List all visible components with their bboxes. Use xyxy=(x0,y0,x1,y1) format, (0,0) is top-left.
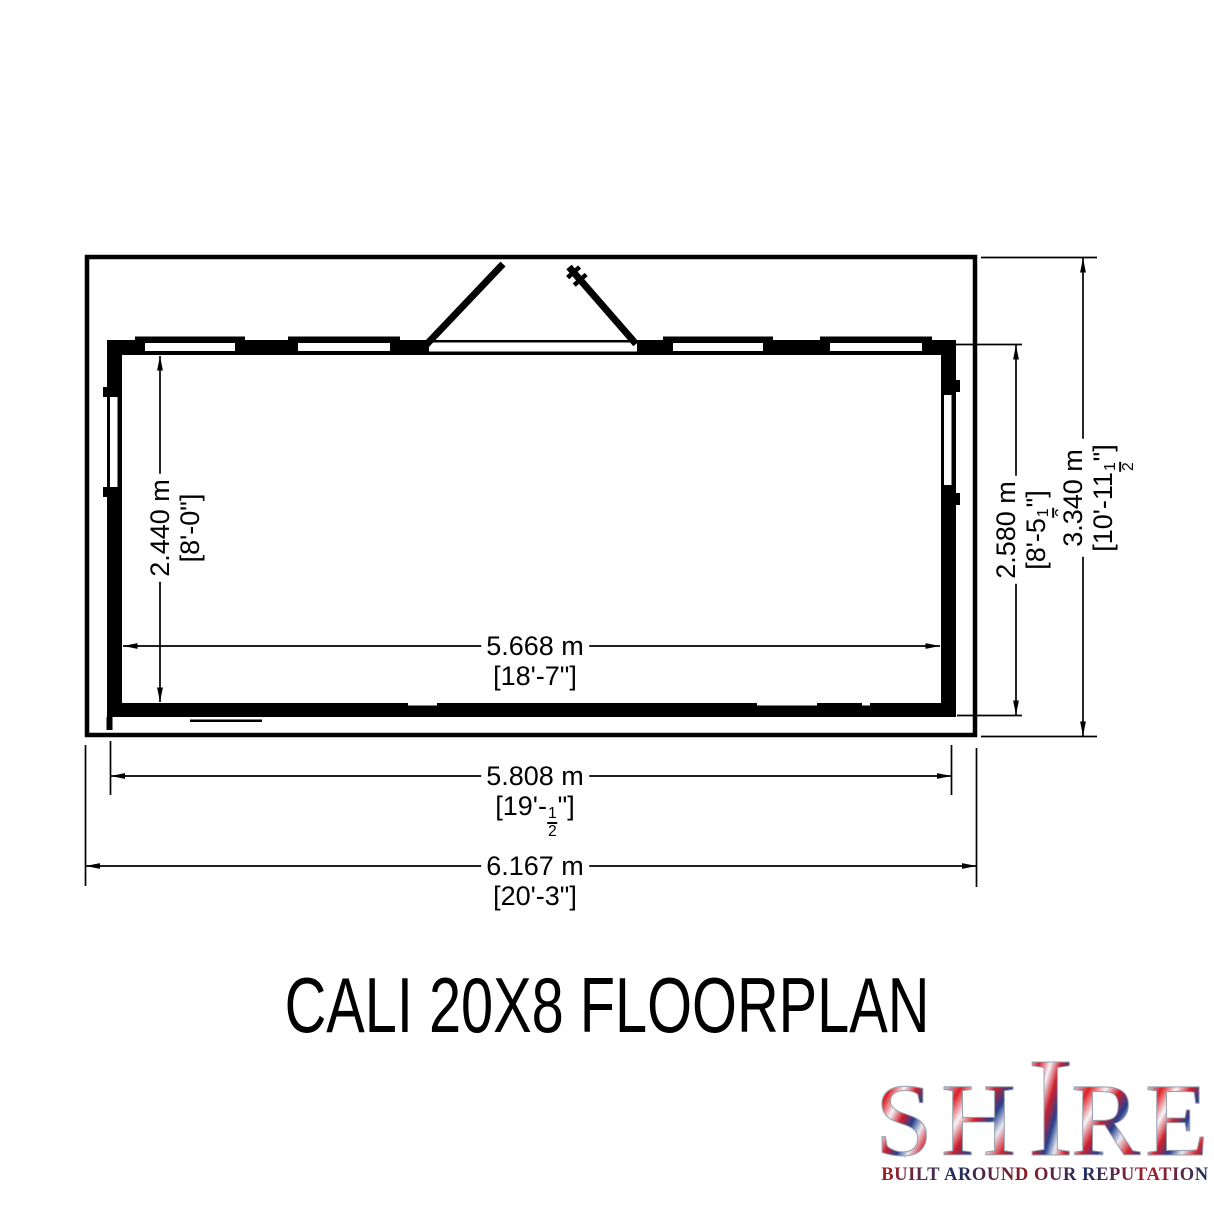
dim-metric: 5.668 m xyxy=(486,631,584,661)
right-window-nub xyxy=(956,380,961,392)
dim-metric: 5.808 m xyxy=(486,761,584,791)
window-frame xyxy=(830,351,922,355)
dim-metric: 2.440 m xyxy=(145,479,175,577)
top-wall-segment xyxy=(637,340,673,355)
window-sill xyxy=(288,337,400,341)
threshold-line xyxy=(190,720,262,723)
window-frame xyxy=(298,340,390,343)
left-window-nub xyxy=(103,387,108,397)
top-wall-segment xyxy=(235,340,298,355)
logo-letter-s: S xyxy=(875,1063,933,1178)
dim-label-inner-depth: 2.440 m [8'-0"] xyxy=(145,474,205,582)
dim-imperial: [20'-3"] xyxy=(486,881,584,911)
window-frame xyxy=(145,340,235,343)
dim-label-frame-width: 5.808 m [19'-12"] xyxy=(481,761,589,841)
logo-letter-h: H xyxy=(941,1063,1016,1178)
window-frame xyxy=(673,340,763,343)
dim-label-overall-depth: 3.340 m [10'-1112"] xyxy=(1058,439,1138,557)
page-title: CALI 20X8 FLOORPLAN xyxy=(158,966,1056,1044)
left-window-nub xyxy=(103,487,108,497)
right-window-nub xyxy=(956,493,961,505)
window-frame xyxy=(298,351,390,355)
top-wall-segment xyxy=(763,340,830,355)
dim-imperial: [8'-0"] xyxy=(175,479,205,577)
window-frame xyxy=(673,351,763,355)
left-wall xyxy=(107,340,122,717)
door-sill xyxy=(429,352,637,356)
bottom-wall xyxy=(107,703,956,717)
door-leaf-left xyxy=(426,264,503,345)
window-frame xyxy=(145,351,235,355)
dim-label-overall-width: 6.167 m [20'-3"] xyxy=(481,851,589,911)
top-wall-segment xyxy=(390,340,429,355)
door-sill xyxy=(429,340,637,343)
logo-letter-e: E xyxy=(1145,1063,1209,1178)
window-sill xyxy=(135,337,245,341)
window-frame xyxy=(830,340,922,343)
dim-label-inner-width: 5.668 m [18'-7"] xyxy=(481,631,589,691)
panel-joint xyxy=(408,703,437,706)
double-door xyxy=(426,264,637,355)
dim-metric: 6.167 m xyxy=(486,851,584,881)
panel-joint xyxy=(757,703,817,706)
floorplan-page: 5.668 m [18'-7"] 5.808 m [19'-12"] 6.167… xyxy=(0,0,1214,1214)
left-window-glazing xyxy=(110,397,118,487)
right-window-glazing xyxy=(944,395,952,485)
logo-letter-r: R xyxy=(1071,1063,1141,1178)
dim-metric: 3.340 m xyxy=(1058,444,1088,552)
panel-joint xyxy=(862,703,870,706)
shire-logo: S H I R E BUILT AROUND OUR REPUTATION xyxy=(875,1043,1214,1208)
dim-metric: 2.580 m xyxy=(991,481,1021,579)
window-sill xyxy=(663,337,773,341)
logo-tagline: BUILT AROUND OUR REPUTATION xyxy=(881,1165,1209,1185)
dim-imperial: [10'-1112"] xyxy=(1088,444,1138,552)
bottom-left-stub xyxy=(107,717,113,730)
window-sill xyxy=(820,337,932,341)
side-windows xyxy=(103,380,960,505)
dim-imperial: [18'-7"] xyxy=(486,661,584,691)
dim-imperial: [19'-12"] xyxy=(486,791,584,841)
